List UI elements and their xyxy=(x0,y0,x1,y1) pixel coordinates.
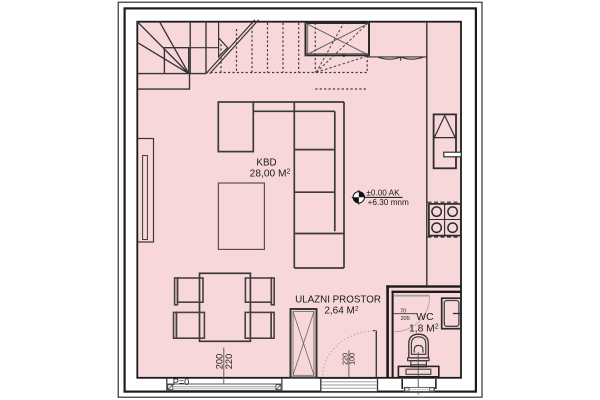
svg-text:100: 100 xyxy=(347,353,356,365)
svg-text:70: 70 xyxy=(400,309,406,315)
svg-text:±0.00 AK: ±0.00 AK xyxy=(366,189,400,198)
svg-text:WC: WC xyxy=(416,312,434,323)
svg-text:200: 200 xyxy=(215,354,225,370)
svg-text:205: 205 xyxy=(401,316,410,322)
svg-text:2,64 M2: 2,64 M2 xyxy=(324,305,359,316)
svg-text:P=0: P=0 xyxy=(173,377,190,387)
svg-text:1,8 M2: 1,8 M2 xyxy=(409,323,439,334)
svg-text:28,00 M2: 28,00 M2 xyxy=(250,168,291,179)
svg-text:KBD: KBD xyxy=(256,158,276,169)
svg-text:ULAZNI PROSTOR: ULAZNI PROSTOR xyxy=(295,295,381,306)
svg-text:220: 220 xyxy=(224,354,234,370)
svg-text:+6.30 mnm: +6.30 mnm xyxy=(368,198,409,207)
